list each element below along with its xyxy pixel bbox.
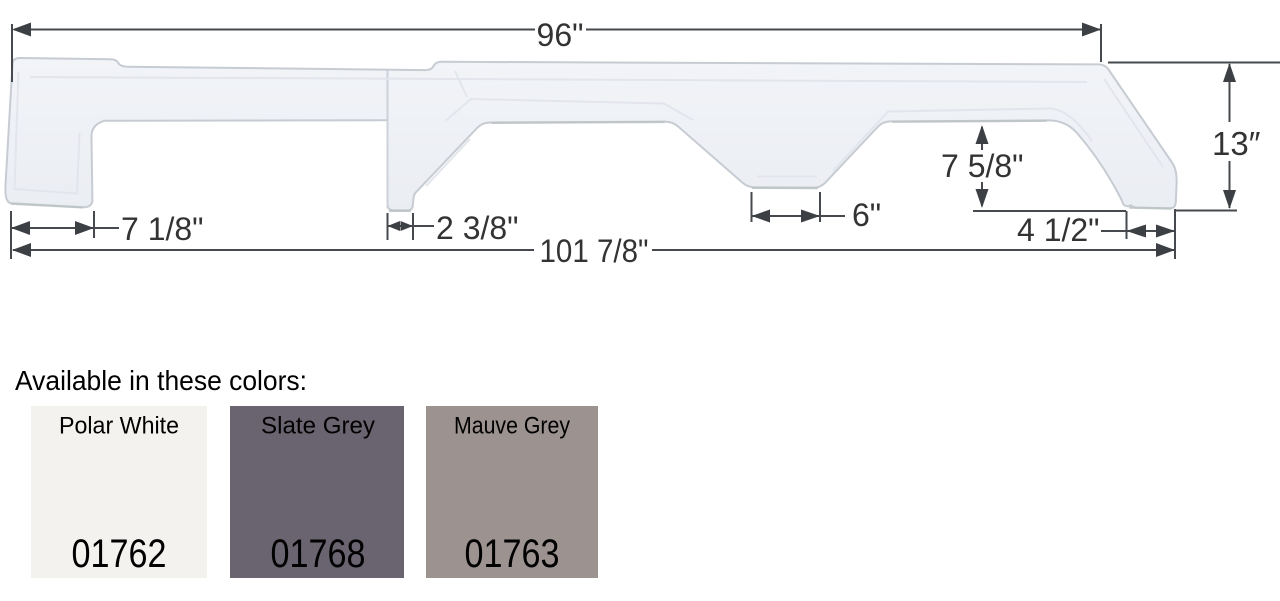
svg-text:Slate Grey: Slate Grey xyxy=(261,413,375,440)
svg-text:Polar White: Polar White xyxy=(59,413,179,440)
svg-text:7 5/8": 7 5/8" xyxy=(941,148,1024,184)
svg-text:7 1/8": 7 1/8" xyxy=(121,211,204,247)
svg-text:01768: 01768 xyxy=(271,532,366,576)
svg-text:Mauve Grey: Mauve Grey xyxy=(454,413,570,440)
svg-text:101 7/8": 101 7/8" xyxy=(540,233,649,269)
svg-text:13″: 13″ xyxy=(1212,125,1261,162)
svg-text:2 3/8": 2 3/8" xyxy=(436,210,519,246)
svg-text:01762: 01762 xyxy=(72,532,167,576)
svg-text:96": 96" xyxy=(537,17,584,53)
svg-text:01763: 01763 xyxy=(465,532,560,576)
svg-text:6": 6" xyxy=(852,197,881,233)
svg-text:Available in these colors:: Available in these colors: xyxy=(15,365,307,396)
svg-text:4 1/2": 4 1/2" xyxy=(1017,212,1100,248)
